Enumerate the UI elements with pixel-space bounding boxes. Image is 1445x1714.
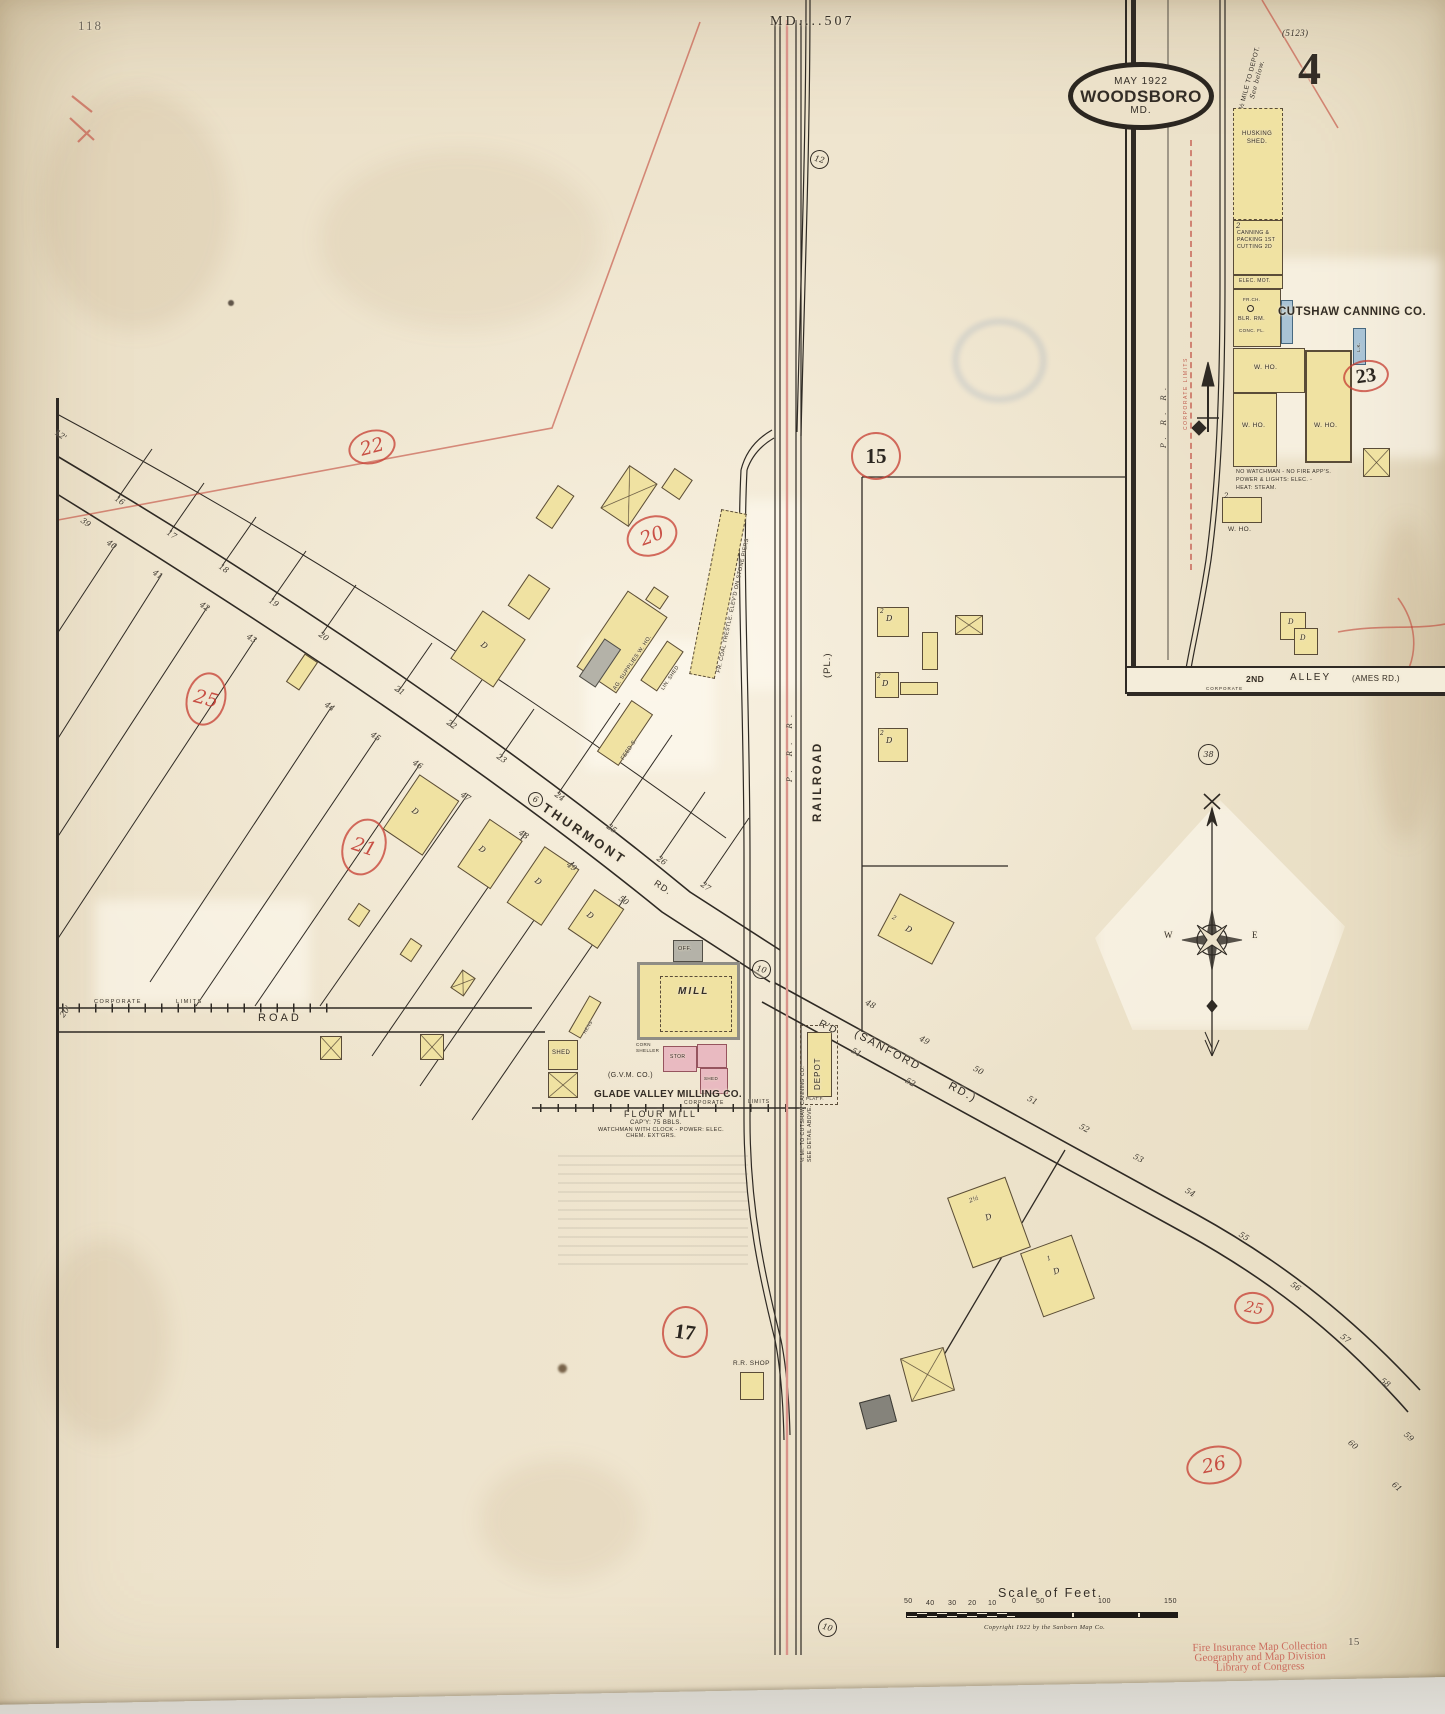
building-dwelling — [383, 774, 460, 856]
building-outbuilding — [450, 969, 476, 996]
paper-stain — [480, 1460, 640, 1580]
lot-number: 16 — [113, 494, 126, 507]
storage-label: STOR — [670, 1054, 685, 1060]
lot-number: 22 — [445, 718, 458, 731]
building-dwelling — [507, 846, 580, 926]
inset-border-bottom — [1127, 692, 1445, 696]
pencil-circle-26: 26 — [1183, 1441, 1246, 1490]
inset-corporate-limits-label: CORPORATE LIMITS — [1183, 357, 1189, 430]
state-name: MD. — [1130, 106, 1151, 116]
lot-number: 52 — [904, 1076, 917, 1089]
west-road-label: ROAD — [258, 1012, 302, 1024]
dwelling-label: D — [1300, 634, 1306, 642]
ink-spot — [228, 300, 234, 306]
scale-bar-left2 — [906, 1615, 1016, 1618]
lot-number: 23 — [495, 752, 508, 765]
dwelling-label: D — [886, 614, 893, 623]
lot-number: 47 — [459, 790, 472, 803]
lot-number: 21 — [393, 684, 406, 697]
building-outbuilding — [900, 682, 938, 695]
dwelling-label: D — [886, 736, 893, 745]
floors: 2 — [1224, 492, 1229, 500]
scale-bar-notch — [1072, 1613, 1074, 1617]
ref-circle-38: 38 — [1198, 744, 1219, 765]
scale-tick: 50 — [904, 1598, 913, 1605]
sheet-border-left — [56, 398, 59, 1648]
building-warehouse-2 — [1233, 393, 1277, 467]
building-dwelling — [568, 889, 625, 949]
lot-number: 49 — [918, 1034, 931, 1047]
dwelling-label: D — [882, 679, 889, 688]
gvm-label: (G.V.M. CO.) — [608, 1072, 653, 1079]
scale-bar-main — [1016, 1612, 1178, 1618]
fire-chimney-label: FR.CH. — [1243, 297, 1260, 302]
building-dwelling — [450, 610, 526, 687]
shed-label: SHED — [552, 1050, 570, 1056]
scale-tick: 100 — [1098, 1598, 1111, 1605]
lot-number: 59 — [1402, 1430, 1416, 1444]
office-label: OFF. — [678, 946, 692, 952]
scale-tick: 30 — [948, 1600, 957, 1607]
rr-shop-label: R.R. SHOP — [733, 1360, 770, 1367]
lot-number: 55 — [1237, 1230, 1250, 1243]
lot-number: 58 — [1378, 1376, 1392, 1389]
depot-note: ½ MI. TO CUTSHAW CANNING CO. SEE DETAIL … — [800, 1066, 814, 1162]
lot-number: 48 — [864, 998, 877, 1011]
scale-bar: Scale of Feet. 50 40 30 20 10 0 50 100 1… — [880, 1584, 1200, 1640]
corn-sheller-label: CORN SHELLER — [636, 1042, 659, 1054]
pencil-circle-21: 21 — [334, 813, 394, 882]
alley-north-line — [1127, 666, 1445, 668]
copyright: Copyright 1922 by the Sanborn Map Co. — [984, 1624, 1105, 1631]
canning-note: NO WATCHMAN - NO FIRE APP'S. POWER & LIG… — [1236, 468, 1331, 492]
lot-number: 60 — [1346, 1438, 1360, 1451]
building-outbuilding — [400, 938, 423, 962]
ink-spot — [558, 1364, 567, 1373]
header-center: MD....507 — [770, 14, 855, 30]
lot-number: 54 — [1184, 1186, 1197, 1199]
inset-corporate-limit-line — [1190, 140, 1192, 570]
building-dwelling — [1020, 1235, 1095, 1318]
mill-inner-outline — [660, 976, 732, 1032]
sanford-paren2-label: RD.) — [946, 1080, 979, 1105]
lot-number: 51 — [850, 1046, 863, 1059]
faint-pencil-notes — [558, 1148, 748, 1270]
building-x-shed — [548, 1072, 578, 1098]
building-shed — [286, 653, 318, 690]
lot-number: 52 — [1078, 1122, 1091, 1135]
building-husking-shed — [1233, 108, 1283, 220]
ref-circle-10: 10 — [816, 1616, 839, 1639]
lot-number: 43 — [245, 632, 258, 645]
lot-number: 44 — [323, 700, 336, 713]
alley-number: 2ND — [1246, 674, 1264, 684]
lot-number: 18 — [217, 562, 230, 575]
compass-west: W — [1164, 930, 1173, 940]
scan-backing — [0, 1676, 1445, 1714]
scale-tick: 50 — [1036, 1598, 1045, 1605]
inset-prr-label: P. R. R. — [1160, 383, 1168, 448]
lot-number: 56 — [1289, 1280, 1302, 1293]
lot-number: 27 — [699, 880, 712, 893]
canning-label: CANNING & PACKING 1ST CUTTING 2D — [1237, 230, 1275, 251]
building-dwelling — [947, 1177, 1031, 1269]
lot-number: 39 — [79, 516, 92, 529]
map-sheet: 118 MD....507 (5123) 4 MAY 1922 WOODSBOR… — [0, 0, 1445, 1714]
scale-tick: 150 — [1164, 1598, 1177, 1605]
building-dwelling — [877, 893, 954, 964]
scale-bar-notch — [1138, 1613, 1140, 1617]
building-x-shed — [420, 1034, 444, 1060]
thurmont-rd-suffix: RD. — [652, 878, 673, 897]
lot-number: 46 — [411, 758, 424, 771]
pencil-circle-17: 17 — [659, 1303, 712, 1361]
faint-library-stamp — [952, 318, 1047, 403]
ref-circle-15: 15 — [851, 432, 901, 480]
building-small — [508, 574, 551, 620]
plate-ref: (5123) — [1282, 28, 1308, 38]
capacity-label: CAP'Y: 75 BBLS. — [630, 1120, 682, 1126]
warehouse-label: W. HO. — [1254, 364, 1277, 371]
dwelling-label: D — [1288, 618, 1294, 626]
building-x-shed — [320, 1036, 342, 1060]
alley-paren: (AMES RD.) — [1352, 674, 1400, 683]
lot-number: 42 — [198, 600, 211, 613]
building-small — [536, 485, 575, 529]
husking-shed-label: HUSKING SHED. — [1242, 130, 1272, 146]
company-name: CUTSHAW CANNING CO. — [1278, 306, 1426, 318]
warehouse-label: W. HO. — [1314, 422, 1337, 429]
elec-motor-label: ELEC. MOT. — [1239, 278, 1271, 284]
library-stamp: Fire Insurance Map Collection Geography … — [1160, 1640, 1360, 1673]
lot-number: 45 — [369, 730, 382, 743]
scale-tick: 10 — [988, 1600, 997, 1607]
lot-number: 53 — [1132, 1152, 1145, 1165]
shed-label: SHED — [704, 1076, 718, 1081]
paper-stain — [40, 90, 230, 330]
ref-circle-12: 12 — [808, 148, 831, 171]
pencil-circle-25: 25 — [180, 668, 233, 731]
paste-patch — [740, 500, 800, 690]
lot-number: 51 — [1026, 1094, 1039, 1107]
concrete-floor-label: CONC. FL. — [1239, 328, 1265, 333]
lot-number: 25 — [605, 822, 618, 835]
depot-label: DEPOT — [813, 1057, 822, 1090]
lot-number: 61 — [1390, 1480, 1404, 1494]
lot-number: 20 — [317, 630, 330, 643]
city-name: WOODSBORO — [1080, 88, 1202, 105]
tank-label: L.K. — [1356, 342, 1361, 352]
building-dwelling — [457, 819, 523, 889]
ref-circle-10: 10 — [750, 958, 773, 981]
lot-number: 20' — [58, 1004, 72, 1019]
lot-number: 41 — [151, 568, 164, 581]
map-date: MAY 1922 — [1114, 77, 1168, 87]
sheet-number: 4 — [1298, 42, 1321, 95]
lot-number: 57 — [1339, 1332, 1353, 1345]
lot-number: 40 — [105, 538, 118, 551]
floors: 2 — [880, 730, 884, 737]
flour-mill-label: FLOUR MILL — [624, 1109, 697, 1119]
building-warehouse-3 — [1305, 350, 1352, 463]
pl-label: (PL.) — [822, 652, 833, 678]
building-narrow — [922, 632, 938, 670]
chem-label: CHEM. EXT'GRS. — [626, 1133, 676, 1139]
building-outbuilding — [348, 903, 371, 927]
paper-stain — [320, 150, 600, 330]
lot-number: 19 — [267, 596, 280, 609]
scale-tick: 20 — [968, 1600, 977, 1607]
building-x-shed — [955, 615, 983, 635]
pencil-circle-25b: 25 — [1232, 1289, 1277, 1327]
lot-number: 50 — [972, 1064, 985, 1077]
scale-tick: 0 — [1012, 1598, 1016, 1605]
title-oval: MAY 1922 WOODSBORO MD. — [1068, 62, 1214, 130]
page-number-top-left: 118 — [78, 18, 103, 34]
building-x-shed — [1363, 448, 1390, 477]
building-warehouse-4 — [1222, 497, 1262, 523]
glade-valley-title: GLADE VALLEY MILLING CO. — [594, 1089, 742, 1100]
north-arrow-icon — [1192, 362, 1219, 435]
alley-name: ALLEY — [1290, 672, 1331, 683]
alley-corporate: CORPORATE — [1206, 686, 1243, 691]
lot-number: 26 — [655, 854, 668, 867]
note-to-depot: ½ MILE TO DEPOT. See below. — [1238, 46, 1269, 112]
boiler-room-label: BLR. RM. — [1238, 316, 1265, 322]
warehouse-label: W. HO. — [1242, 422, 1265, 429]
mill-label: MILL — [678, 986, 709, 997]
paste-patch — [95, 900, 310, 1005]
compass-east: E — [1252, 930, 1258, 940]
building-storage — [697, 1044, 727, 1068]
lot-number: 24 — [553, 790, 566, 803]
lot-number: 17 — [165, 528, 178, 541]
floors: 2 — [1236, 222, 1241, 230]
corporate-label: CORPORATE — [94, 999, 142, 1005]
floors: 2 — [880, 608, 884, 615]
building-small — [661, 468, 693, 500]
building-barn — [900, 1347, 955, 1402]
paste-patch — [1095, 800, 1345, 1030]
building-rr-shop — [740, 1372, 764, 1400]
railroad-label: RAILROAD — [812, 741, 824, 822]
warehouse-label: W. HO. — [1228, 526, 1251, 533]
floors: 2 — [877, 673, 881, 680]
pencil-circle-22: 22 — [344, 424, 399, 469]
building-iron-shed — [859, 1394, 897, 1429]
scale-tick: 40 — [926, 1600, 935, 1607]
boiler-flue-mark — [1247, 305, 1254, 312]
limits-label: LIMITS — [748, 1099, 770, 1105]
paper-stain — [40, 1240, 170, 1440]
limits-label: LIMITS — [176, 999, 203, 1005]
page-number-bottom-right: 15 — [1348, 1636, 1360, 1648]
corporate-label: CORPORATE — [684, 1100, 724, 1106]
prr-label: P. R. R. — [786, 709, 794, 782]
